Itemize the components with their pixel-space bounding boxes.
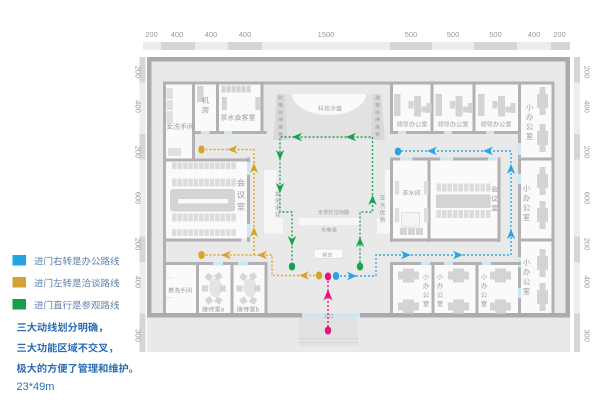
svg-text:400: 400 xyxy=(528,30,541,39)
svg-text:500: 500 xyxy=(489,30,502,39)
svg-text:500: 500 xyxy=(405,30,418,39)
svg-text:400: 400 xyxy=(583,100,592,113)
svg-text:400: 400 xyxy=(134,276,143,289)
svg-text:300: 300 xyxy=(134,329,143,342)
svg-text:200: 200 xyxy=(134,238,143,251)
svg-text:400: 400 xyxy=(239,30,252,39)
svg-text:200: 200 xyxy=(583,146,592,159)
svg-text:23*49m: 23*49m xyxy=(17,381,55,393)
svg-text:200: 200 xyxy=(145,30,158,39)
svg-text:200: 200 xyxy=(134,66,143,79)
svg-text:400: 400 xyxy=(171,30,184,39)
svg-text:1500: 1500 xyxy=(318,30,335,39)
svg-text:400: 400 xyxy=(134,100,143,113)
svg-text:400: 400 xyxy=(205,30,218,39)
svg-text:200: 200 xyxy=(134,146,143,159)
svg-text:400: 400 xyxy=(583,276,592,289)
svg-text:600: 600 xyxy=(583,192,592,205)
svg-text:600: 600 xyxy=(134,192,143,205)
svg-text:300: 300 xyxy=(583,329,592,342)
svg-text:200: 200 xyxy=(553,30,566,39)
svg-text:200: 200 xyxy=(583,238,592,251)
svg-text:500: 500 xyxy=(447,30,460,39)
svg-text:200: 200 xyxy=(583,66,592,79)
